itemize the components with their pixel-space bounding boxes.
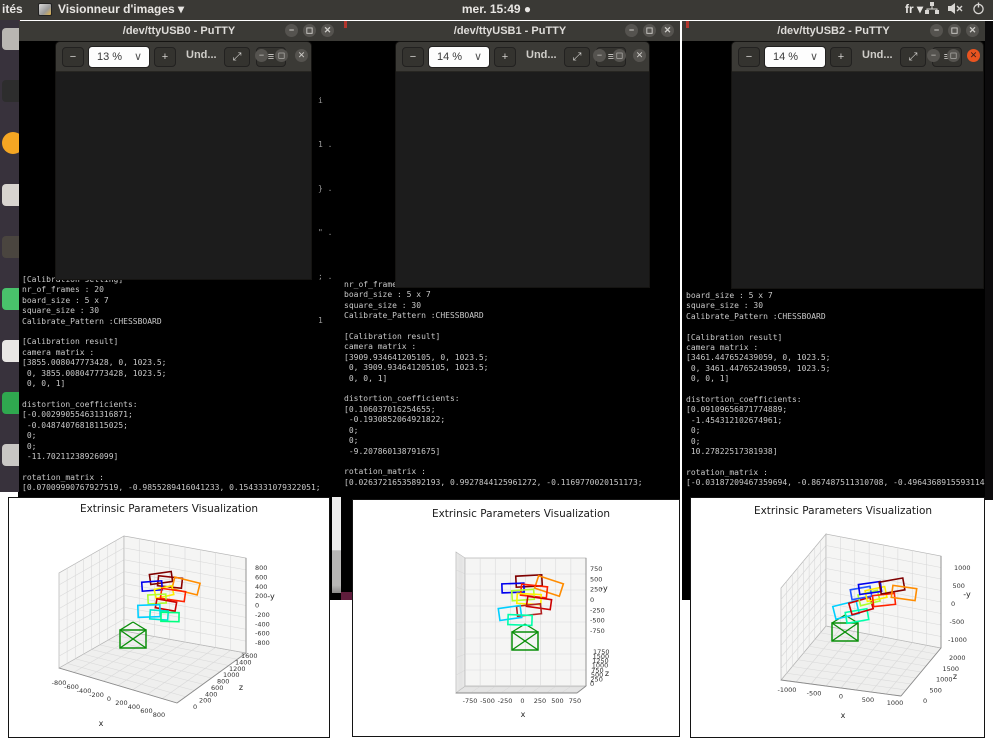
- terminal-line: square_size : 30: [344, 301, 643, 311]
- tick-label: 1750: [593, 648, 610, 656]
- zoom-in-button[interactable]: +: [154, 47, 176, 67]
- tick-label: 0: [839, 693, 843, 701]
- terminal-line: [0.02637216535892193, 0.9927844125961272…: [344, 478, 643, 488]
- terminal-line: 0;: [22, 442, 321, 452]
- terminal-line: 0, 3461.447652439059, 1023.5;: [686, 364, 985, 374]
- image-title-truncated: Und...: [186, 49, 217, 61]
- terminal-line: distortion_coefficients:: [344, 394, 643, 404]
- terminal-line: board_size : 5 x 7: [686, 291, 985, 301]
- terminal-line: 0;: [686, 437, 985, 447]
- terminal-line: distortion_coefficients:: [686, 395, 985, 405]
- window-close-icon[interactable]: ✕: [966, 24, 979, 37]
- tick-label: 600: [140, 707, 152, 715]
- terminal-line: square_size : 30: [22, 306, 321, 316]
- zoom-level-value: 14 %: [437, 47, 462, 67]
- tick-label: 250: [534, 697, 546, 705]
- terminal-line: [344, 384, 643, 394]
- terminal-line: camera matrix :: [686, 343, 985, 353]
- scrollbar[interactable]: [332, 497, 341, 593]
- chevron-down-icon: ▾: [917, 2, 923, 16]
- tick-label: -500: [590, 617, 605, 625]
- terminal-line: [Calibration result]: [344, 332, 643, 342]
- terminal-line: [686, 458, 985, 468]
- tick-label: -1000: [948, 636, 967, 644]
- terminal-line: Calibrate_Pattern :CHESSBOARD: [686, 312, 985, 322]
- plot-title: Extrinsic Parameters Visualization: [754, 505, 932, 517]
- tick-label: -750: [463, 697, 478, 705]
- fullscreen-button[interactable]: ⤢: [900, 47, 926, 67]
- zoom-out-button[interactable]: −: [402, 47, 424, 67]
- tick-label: 1000: [936, 676, 953, 684]
- tick-label: 800: [255, 564, 267, 572]
- zoom-level-dropdown[interactable]: 13 % ∨: [88, 46, 150, 68]
- terminal-line: [Calibration result]: [22, 337, 321, 347]
- window-close-icon[interactable]: ✕: [321, 24, 334, 37]
- tick-label: 500: [551, 697, 563, 705]
- terminal-line: 0;: [344, 426, 643, 436]
- terminal-line: [3461.447652439059, 0, 1023.5;: [686, 353, 985, 363]
- terminal-line: 0, 0, 1]: [22, 379, 321, 389]
- tick-label: 750: [569, 697, 581, 705]
- tick-label: 200: [255, 592, 267, 600]
- window-titlebar[interactable]: /dev/ttyUSB2 - PuTTY − ◻ ✕: [682, 21, 985, 41]
- zoom-level-value: 14 %: [773, 47, 798, 67]
- axis-label: -y: [267, 592, 275, 601]
- terminal-line: rotation_matrix :: [22, 473, 321, 483]
- terminal-line: [3909.934641205105, 0, 1023.5;: [344, 353, 643, 363]
- image-title-truncated: Und...: [862, 49, 893, 61]
- axis-label: x: [99, 719, 104, 728]
- terminal-line: [-0.002990554631316871;: [22, 410, 321, 420]
- terminal-line: rotation_matrix :: [686, 468, 985, 478]
- terminal-line: [22, 389, 321, 399]
- terminal-line: 0;: [686, 426, 985, 436]
- terminal-line: nr_of_frames : 20: [22, 285, 321, 295]
- tick-label: -200: [89, 691, 104, 699]
- image-viewer-window: − 13 % ∨ + Und... ⤢ ≡ − ◻ ✕: [55, 41, 312, 280]
- zoom-out-button[interactable]: −: [62, 47, 84, 67]
- terminal-line: square_size : 30: [686, 301, 985, 311]
- tick-label: 1600: [241, 652, 258, 660]
- axis-label: z: [953, 672, 957, 681]
- terminal-line: [344, 322, 643, 332]
- right-edge-strip: [985, 21, 993, 500]
- window-maximize-icon[interactable]: ◻: [948, 24, 961, 37]
- tick-label: 0: [193, 703, 197, 711]
- terminal-line: Calibrate_Pattern :CHESSBOARD: [344, 311, 643, 321]
- terminal-line: 10.27822517381938]: [686, 447, 985, 457]
- axis-label: z: [605, 669, 609, 678]
- image-viewer-headerbar[interactable]: − 14 % ∨ + Und... ⤢ ≡ − ◻ ✕: [732, 42, 983, 72]
- terminal-line: [Calibration result]: [686, 333, 985, 343]
- chevron-down-icon: ∨: [474, 47, 482, 67]
- tick-label: -600: [255, 630, 270, 638]
- tick-label: -750: [590, 627, 605, 635]
- tick-label: 800: [153, 711, 165, 719]
- volume-muted-icon[interactable]: [948, 2, 963, 15]
- fullscreen-button[interactable]: ⤢: [224, 47, 250, 67]
- terminal-line: camera matrix :: [22, 348, 321, 358]
- axis-label: x: [841, 711, 846, 720]
- terminal-line: [-0.03187209467359694, -0.86748751131070…: [686, 478, 985, 488]
- terminal-line: 0;: [344, 436, 643, 446]
- claw-app-dock-icon[interactable]: [2, 340, 19, 362]
- tick-label: -500: [950, 618, 965, 626]
- extrinsic-plot-window-3[interactable]: Extrinsic Parameters Visualization-1000-…: [690, 497, 985, 738]
- tick-label: 0: [951, 600, 955, 608]
- window-title: /dev/ttyUSB2 - PuTTY: [777, 25, 889, 37]
- viewer-maximize-icon[interactable]: ◻: [947, 49, 960, 62]
- zoom-level-dropdown[interactable]: 14 % ∨: [764, 46, 826, 68]
- tick-label: 1000: [887, 699, 904, 707]
- tick-label: 0: [590, 596, 594, 604]
- tweaks-dock-icon[interactable]: [2, 236, 19, 258]
- window-title: /dev/ttyUSB1 - PuTTY: [454, 25, 566, 37]
- terminal-output[interactable]: nr_of_frames : 20board_size : 5 x 7squar…: [344, 280, 643, 488]
- viewer-maximize-icon[interactable]: ◻: [613, 49, 626, 62]
- terminal-line: -11.70211238926099]: [22, 452, 321, 462]
- image-viewer-window: − 14 % ∨ + Und... ⤢ ≡ − ◻ ✕: [395, 41, 650, 288]
- window-maximize-icon[interactable]: ◻: [643, 24, 656, 37]
- window-minimize-icon[interactable]: −: [625, 24, 638, 37]
- terminal-line: Calibrate_Pattern :CHESSBOARD: [22, 317, 321, 327]
- window-title: /dev/ttyUSB0 - PuTTY: [123, 25, 235, 37]
- top-panel: ités Visionneur d'images ▾ mer. 15:49 ● …: [0, 0, 993, 20]
- axis-label: -y: [600, 584, 608, 593]
- window-bottom-edge: [341, 592, 352, 600]
- image-title-truncated: Und...: [526, 49, 557, 61]
- window-maximize-icon[interactable]: ◻: [303, 24, 316, 37]
- tick-label: 0: [107, 695, 111, 703]
- tick-label: 2000: [949, 654, 966, 662]
- plot-title: Extrinsic Parameters Visualization: [80, 503, 258, 515]
- fullscreen-button[interactable]: ⤢: [564, 47, 590, 67]
- terminal-line: [22, 462, 321, 472]
- package-dock-icon[interactable]: [2, 392, 19, 414]
- tick-label: 0: [923, 697, 927, 705]
- terminal-line: [3855.008047773428, 0, 1023.5;: [22, 358, 321, 368]
- extrinsic-plot-window-1[interactable]: Extrinsic Parameters Visualization-800-6…: [8, 497, 330, 738]
- tick-label: 500: [590, 575, 602, 583]
- viewer-close-icon[interactable]: ✕: [967, 49, 980, 62]
- tick-label: 0: [255, 602, 259, 610]
- zoom-in-button[interactable]: +: [830, 47, 852, 67]
- viewer-maximize-icon[interactable]: ◻: [275, 49, 288, 62]
- tick-label: -500: [480, 697, 495, 705]
- image-viewer-headerbar[interactable]: − 14 % ∨ + Und... ⤢ ≡ − ◻ ✕: [396, 42, 649, 72]
- viewer-minimize-icon[interactable]: −: [593, 49, 606, 62]
- terminal-line: board_size : 5 x 7: [22, 296, 321, 306]
- tick-label: -250: [590, 606, 605, 614]
- window-minimize-icon[interactable]: −: [930, 24, 943, 37]
- terminal-line: -0.04874076818115025;: [22, 421, 321, 431]
- axis-label: -y: [963, 590, 971, 599]
- viewer-minimize-icon[interactable]: −: [927, 49, 940, 62]
- zoom-out-button[interactable]: −: [738, 47, 760, 67]
- terminal-line: 0, 3909.934641205105, 1023.5;: [344, 363, 643, 373]
- window-titlebar[interactable]: /dev/ttyUSB1 - PuTTY − ◻ ✕: [340, 21, 680, 41]
- keyboard-layout-indicator[interactable]: fr ▾: [905, 2, 923, 16]
- terminal-line: [686, 322, 985, 332]
- terminal-line: distortion_coefficients:: [22, 400, 321, 410]
- tick-label: -250: [498, 697, 513, 705]
- display-dock-icon[interactable]: [2, 80, 19, 102]
- terminal-line: -9.207860138791675]: [344, 447, 643, 457]
- tick-label: -200: [255, 611, 270, 619]
- tick-label: 500: [930, 686, 942, 694]
- viewer-close-icon[interactable]: ✕: [633, 49, 646, 62]
- power-icon[interactable]: [972, 2, 985, 15]
- tick-label: 400: [128, 703, 140, 711]
- bell-indicator: [344, 21, 347, 28]
- zoom-in-button[interactable]: +: [494, 47, 516, 67]
- chevron-down-icon: ∨: [134, 47, 142, 67]
- clock[interactable]: mer. 15:49 ●: [0, 2, 993, 16]
- terminal-line: -0.1930852064921822;: [344, 415, 643, 425]
- window-titlebar[interactable]: /dev/ttyUSB0 - PuTTY − ◻ ✕: [18, 21, 340, 41]
- window-close-icon[interactable]: ✕: [661, 24, 674, 37]
- bell-indicator: [686, 21, 689, 28]
- tick-label: -500: [807, 689, 822, 697]
- chevron-down-icon: ∨: [810, 47, 818, 67]
- terminal-line: [0.09109656871774889;: [686, 405, 985, 415]
- viewer-close-icon[interactable]: ✕: [295, 49, 308, 62]
- axis-label: z: [239, 683, 243, 692]
- terminal-line: camera matrix :: [344, 342, 643, 352]
- image-viewer-headerbar[interactable]: − 13 % ∨ + Und... ⤢ ≡ − ◻ ✕: [56, 42, 311, 72]
- launcher-dock: [0, 20, 19, 492]
- trash-dock-icon[interactable]: [2, 444, 19, 466]
- firefox-dock-icon[interactable]: [2, 132, 19, 154]
- printer-dock-icon[interactable]: [2, 28, 19, 50]
- terminal-line: [0.106037016254655;: [344, 405, 643, 415]
- terminal-line: 0;: [22, 431, 321, 441]
- tick-label: 500: [953, 582, 965, 590]
- terminal-scrollback-fragments: i 1 . } . " . ; . 1: [318, 79, 332, 343]
- tick-label: 0: [520, 697, 524, 705]
- window-minimize-icon[interactable]: −: [285, 24, 298, 37]
- tick-label: 400: [255, 583, 267, 591]
- terminal-line: 0, 0, 1]: [344, 374, 643, 384]
- terminal-line: [0.07009990767927519, -0.985528941604123…: [22, 483, 321, 493]
- terminal-line: 0, 0, 1]: [686, 374, 985, 384]
- tick-label: 600: [255, 573, 267, 581]
- tick-label: 200: [115, 699, 127, 707]
- terminal-line: board_size : 5 x 7: [344, 290, 643, 300]
- tick-label: 1000: [954, 564, 971, 572]
- zoom-level-dropdown[interactable]: 14 % ∨: [428, 46, 490, 68]
- zoom-level-value: 13 %: [97, 47, 122, 67]
- tick-label: -1000: [778, 686, 797, 694]
- terminal-line: rotation_matrix :: [344, 467, 643, 477]
- tick-label: -800: [255, 639, 270, 647]
- terminal-line: [686, 385, 985, 395]
- extrinsic-plot-window-2[interactable]: Extrinsic Parameters Visualization-750-5…: [352, 499, 680, 737]
- plot-title: Extrinsic Parameters Visualization: [432, 508, 610, 520]
- terminal-line: [22, 327, 321, 337]
- terminal-line: [344, 457, 643, 467]
- terminal-output[interactable]: [Calibration setting]nr_of_frames : 20bo…: [22, 275, 321, 494]
- updater-dock-icon[interactable]: [2, 288, 19, 310]
- gimp-dock-icon[interactable]: [2, 184, 19, 206]
- tick-label: -400: [255, 620, 270, 628]
- axis-label: x: [521, 710, 526, 719]
- image-viewer-window: − 14 % ∨ + Und... ⤢ ≡ − ◻ ✕: [731, 41, 984, 289]
- network-icon[interactable]: [925, 2, 939, 15]
- viewer-minimize-icon[interactable]: −: [255, 49, 268, 62]
- terminal-line: -1.454312102674961;: [686, 416, 985, 426]
- tick-label: 500: [862, 696, 874, 704]
- tick-label: 750: [590, 565, 602, 573]
- terminal-output[interactable]: board_size : 5 x 7square_size : 30Calibr…: [686, 291, 985, 489]
- terminal-line: 0, 3855.008047773428, 1023.5;: [22, 369, 321, 379]
